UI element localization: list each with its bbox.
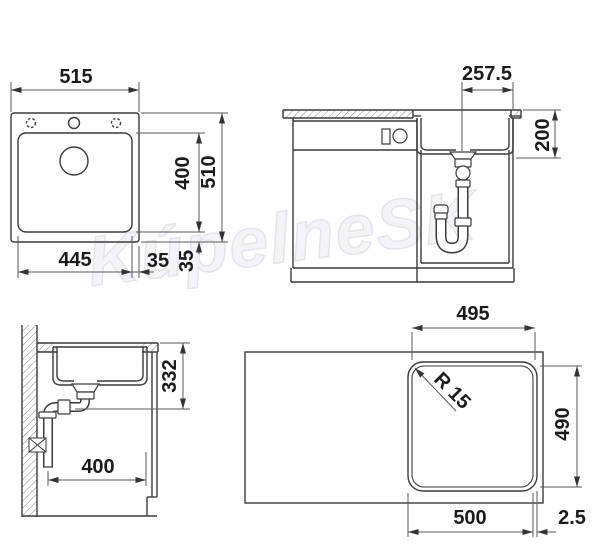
dim-wall-distance-label: 400 (81, 457, 114, 477)
dim-overall-width-label: 515 (59, 67, 92, 87)
bowl-outline-top (18, 133, 132, 232)
tap-hole-right-optional (112, 119, 121, 128)
dim-edge-offset-v-label: 35 (177, 250, 197, 272)
front-view (283, 110, 521, 282)
worktop-outline (245, 352, 543, 503)
dim-edge-gap-label: 2.5 (558, 508, 586, 528)
cutout-view (245, 352, 543, 503)
dim-cutout-width-top-label: 495 (456, 304, 489, 324)
countertop-hatch-right (511, 110, 521, 118)
bowl-inner-front (421, 118, 509, 150)
dim-drain-offset-label: 257.5 (462, 64, 512, 84)
bowl-outer-side (53, 347, 147, 385)
dim-edge-offset-h-label: 35 (147, 251, 169, 271)
dim-cutout-width-bottom-label: 500 (453, 508, 486, 528)
countertop-hatch-left (283, 110, 413, 118)
dim-overall-length-label: 510 (199, 155, 219, 188)
tap-hole-center (69, 118, 80, 129)
bowl-outer-front (417, 118, 513, 154)
wall-hatch (22, 325, 37, 517)
dim-install-clearance-label: 332 (160, 359, 180, 392)
dim-bowl-width-label: 445 (58, 250, 91, 270)
drain-hole (60, 147, 88, 175)
dim-bowl-depth-label: 200 (533, 118, 553, 151)
cabinet-handle-rect (382, 129, 390, 144)
dim-cutout-height-label: 490 (553, 407, 573, 440)
tap-hole-left-optional (27, 119, 36, 128)
top-view (11, 113, 139, 242)
siphon-front (434, 152, 476, 248)
dim-bowl-length-label: 400 (173, 156, 193, 189)
side-view (22, 325, 158, 517)
technical-drawing-page: KúpelneSK (0, 0, 600, 544)
top-view-dimensions (11, 82, 228, 278)
cabinet-handle-knob (393, 129, 407, 143)
siphon-side (29, 384, 99, 467)
bowl-inner-side (57, 347, 143, 381)
